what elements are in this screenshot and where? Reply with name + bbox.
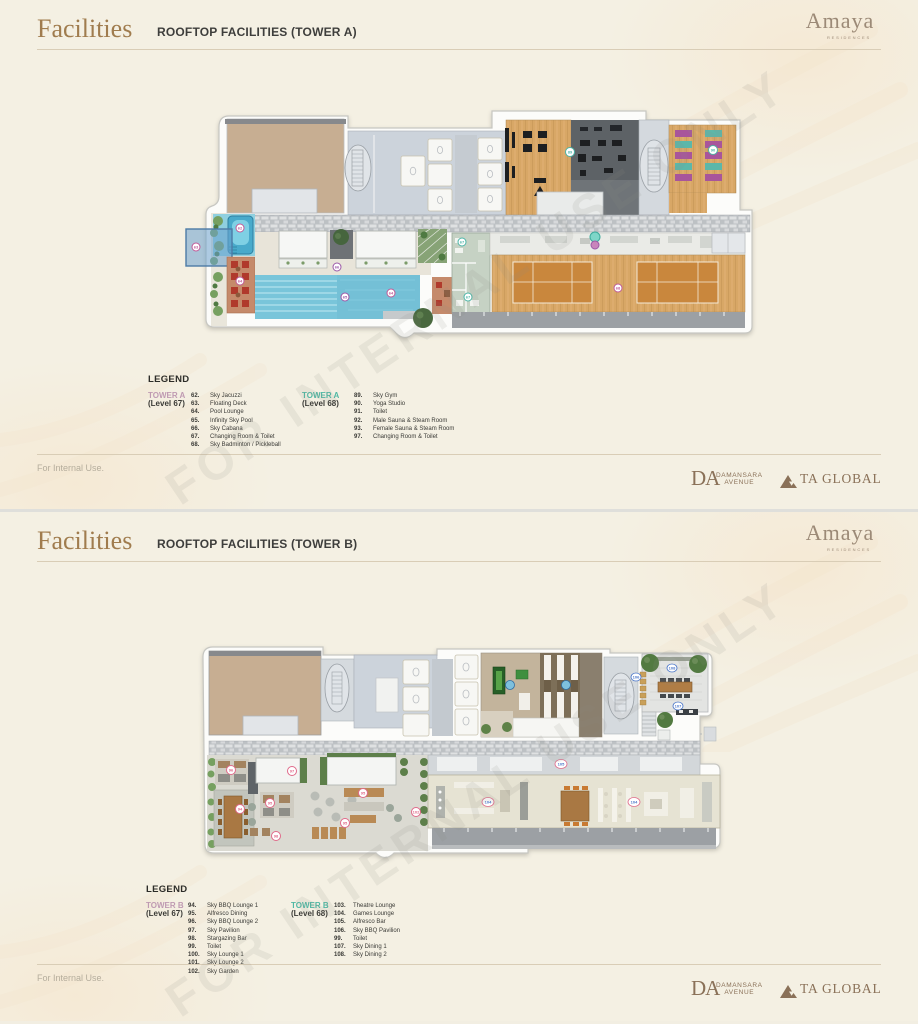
svg-text:96: 96 [229, 768, 234, 773]
svg-text:95: 95 [361, 791, 366, 796]
svg-text:65: 65 [343, 295, 348, 300]
svg-text:98: 98 [274, 834, 279, 839]
svg-text:107: 107 [675, 704, 682, 709]
svg-text:66: 66 [335, 265, 340, 270]
svg-text:62: 62 [238, 226, 243, 231]
svg-text:104: 104 [631, 800, 638, 805]
svg-text:97: 97 [290, 769, 295, 774]
svg-text:95: 95 [343, 821, 348, 826]
svg-text:89: 89 [568, 150, 573, 155]
svg-text:95: 95 [268, 801, 273, 806]
svg-text:63: 63 [194, 245, 199, 250]
svg-text:64: 64 [238, 279, 243, 284]
svg-text:67: 67 [460, 240, 465, 245]
svg-text:68: 68 [616, 286, 621, 291]
svg-text:64: 64 [389, 291, 394, 296]
svg-text:94: 94 [238, 807, 243, 812]
